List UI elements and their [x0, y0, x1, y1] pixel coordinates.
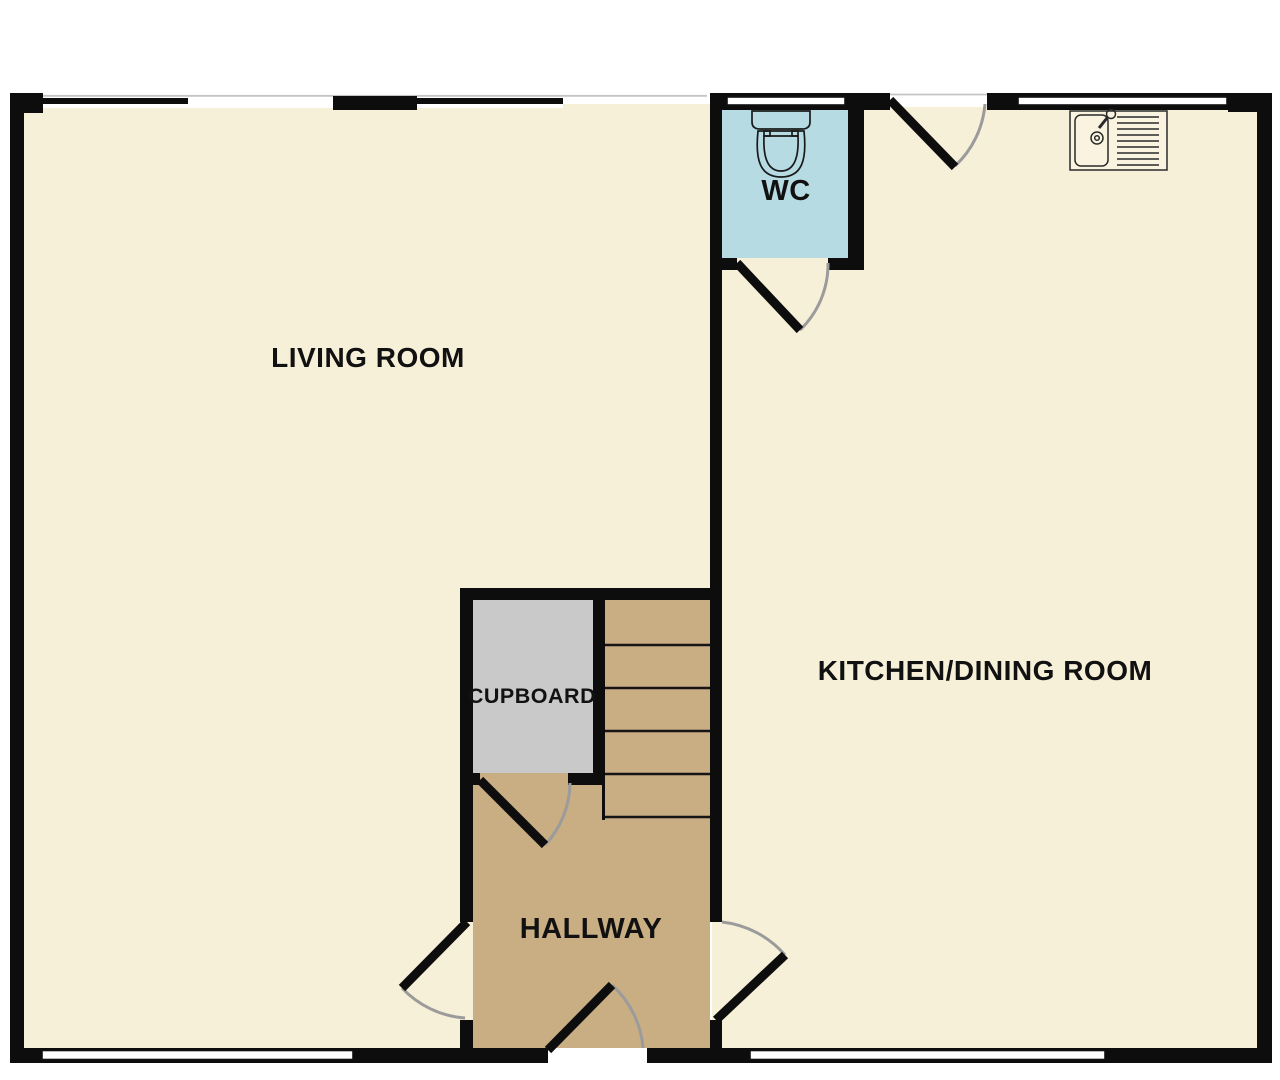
wall-left-exterior — [10, 93, 24, 1063]
wall-right-exterior — [1257, 93, 1272, 1063]
window-kitchen-top — [1018, 97, 1227, 105]
kitchen-sink-icon — [1070, 110, 1167, 171]
room-fills — [24, 104, 1257, 1048]
kitchen-dining-room-label: KITCHEN/DINING ROOM — [818, 655, 1153, 686]
wall-corner-top-left — [10, 93, 43, 113]
wall-living-kitchen-divider-lower — [710, 1020, 722, 1063]
top-wall-pier — [333, 96, 417, 110]
living-room-label: LIVING ROOM — [271, 342, 465, 373]
hallway-label: HALLWAY — [520, 913, 663, 945]
cupboard-label: CUPBOARD — [468, 684, 596, 708]
stair-side-edge-line — [602, 782, 605, 820]
window-sill-line-mid — [417, 98, 563, 104]
window-kitchen-bottom — [750, 1051, 1105, 1060]
wall-hallway-left-upper — [460, 588, 473, 922]
window-sill-line-left — [43, 98, 188, 104]
wall-wc-bottom-left-stub — [710, 258, 737, 270]
floorplan-canvas: LIVING ROOM WC KITCHEN/DINING ROOM CUPBO… — [0, 0, 1280, 1080]
wc-label: WC — [761, 175, 810, 207]
floorplan-drawing: LIVING ROOM WC KITCHEN/DINING ROOM CUPBO… — [0, 0, 1280, 1080]
wall-hallway-left-lower — [460, 1020, 473, 1063]
wall-kitchen-top-stub — [864, 93, 890, 110]
window-wc-top — [727, 97, 845, 105]
window-living-room-bottom — [42, 1051, 353, 1060]
wall-cupboard-top — [460, 588, 722, 600]
wall-wc-right — [848, 93, 864, 270]
wall-cupboard-bottom-right-stub — [568, 773, 605, 785]
wall-living-kitchen-divider — [710, 93, 722, 922]
wall-corner-top-right — [1228, 93, 1272, 112]
wall-wc-bottom-right-stub — [828, 258, 864, 270]
